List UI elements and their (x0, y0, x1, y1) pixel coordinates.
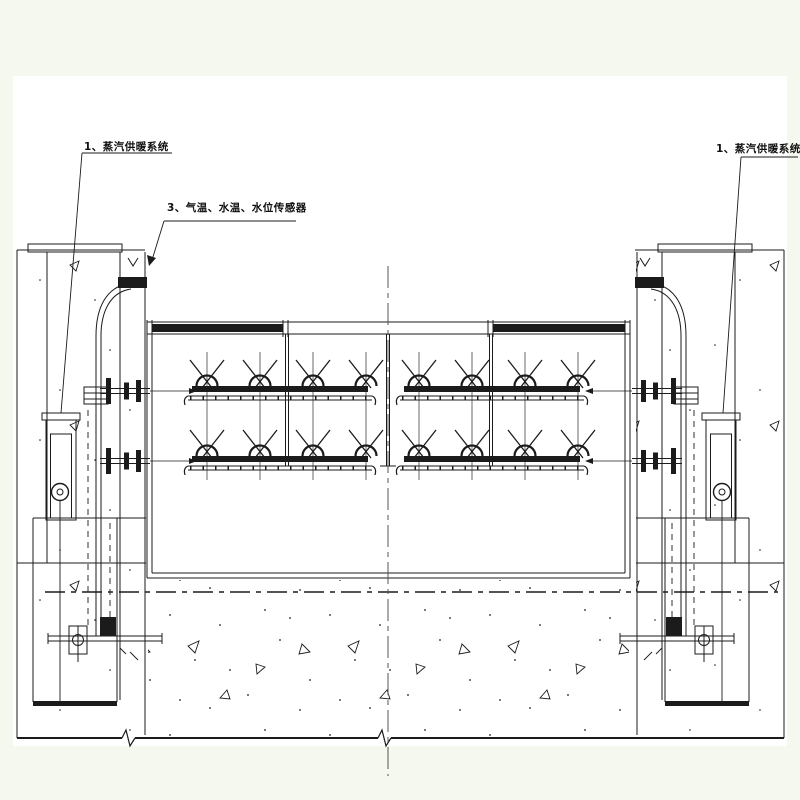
callout-sensors: 3、气温、水温、水位传感器 (167, 200, 307, 215)
section-drawing (0, 0, 800, 800)
concrete-texture (18, 254, 783, 736)
leader-arrowhead-icon (147, 255, 156, 266)
page-background: 1、蒸汽供暖系统 3、气温、水温、水位传感器 1、蒸汽供暖系统 (0, 0, 800, 800)
heater-bank-left (184, 352, 383, 480)
heater-bank-right (396, 352, 595, 480)
leader-line-sensors (152, 221, 164, 260)
callout-steam-supply-right: 1、蒸汽供暖系统 (716, 141, 800, 156)
callout-steam-supply-left: 1、蒸汽供暖系统 (84, 139, 169, 154)
